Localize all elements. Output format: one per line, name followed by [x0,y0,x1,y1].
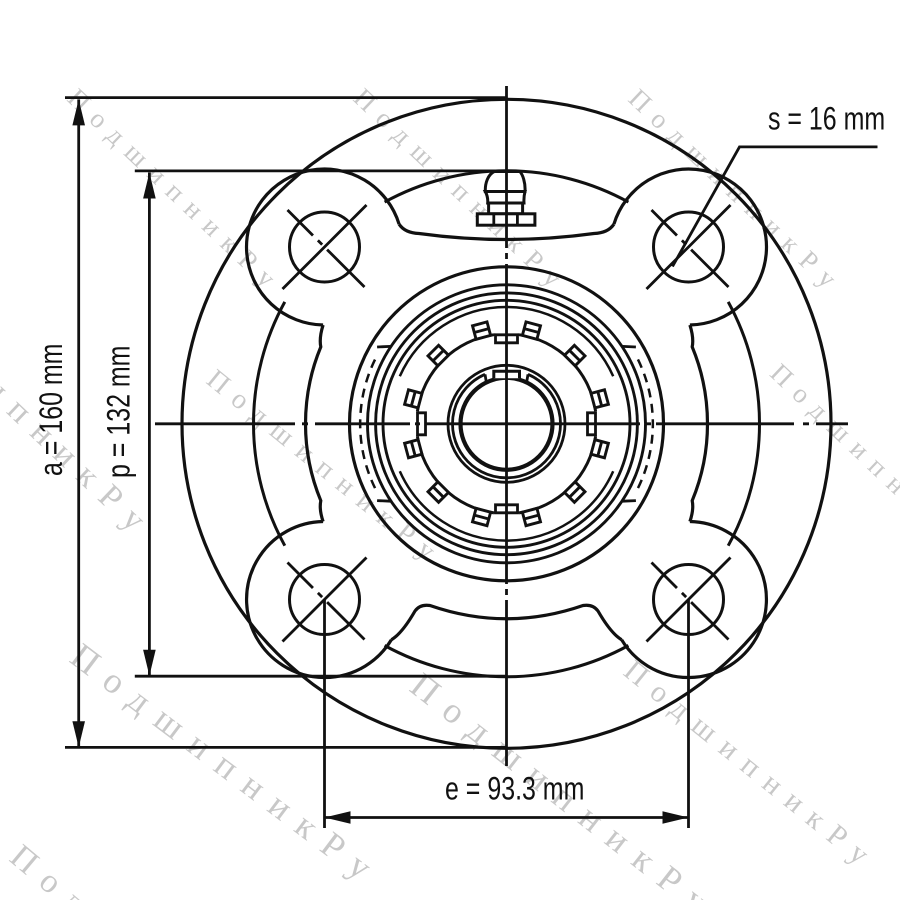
svg-text:e = 93.3 mm: e = 93.3 mm [445,772,584,808]
svg-text:ПодшипникРу: ПодшипникРу [62,83,289,301]
svg-text:ПодшипникРу: ПодшипникРу [0,274,162,548]
svg-text:ПодшипникРу: ПодшипникРу [348,82,575,300]
svg-text:ПодшипникРу: ПодшипникРу [3,838,302,900]
svg-text:a = 160 mm: a = 160 mm [34,344,70,476]
svg-text:p = 132 mm: p = 132 mm [102,346,138,478]
svg-text:ПодшипникРу: ПодшипникРу [764,358,900,576]
svg-text:s = 16 mm: s = 16 mm [768,102,885,138]
